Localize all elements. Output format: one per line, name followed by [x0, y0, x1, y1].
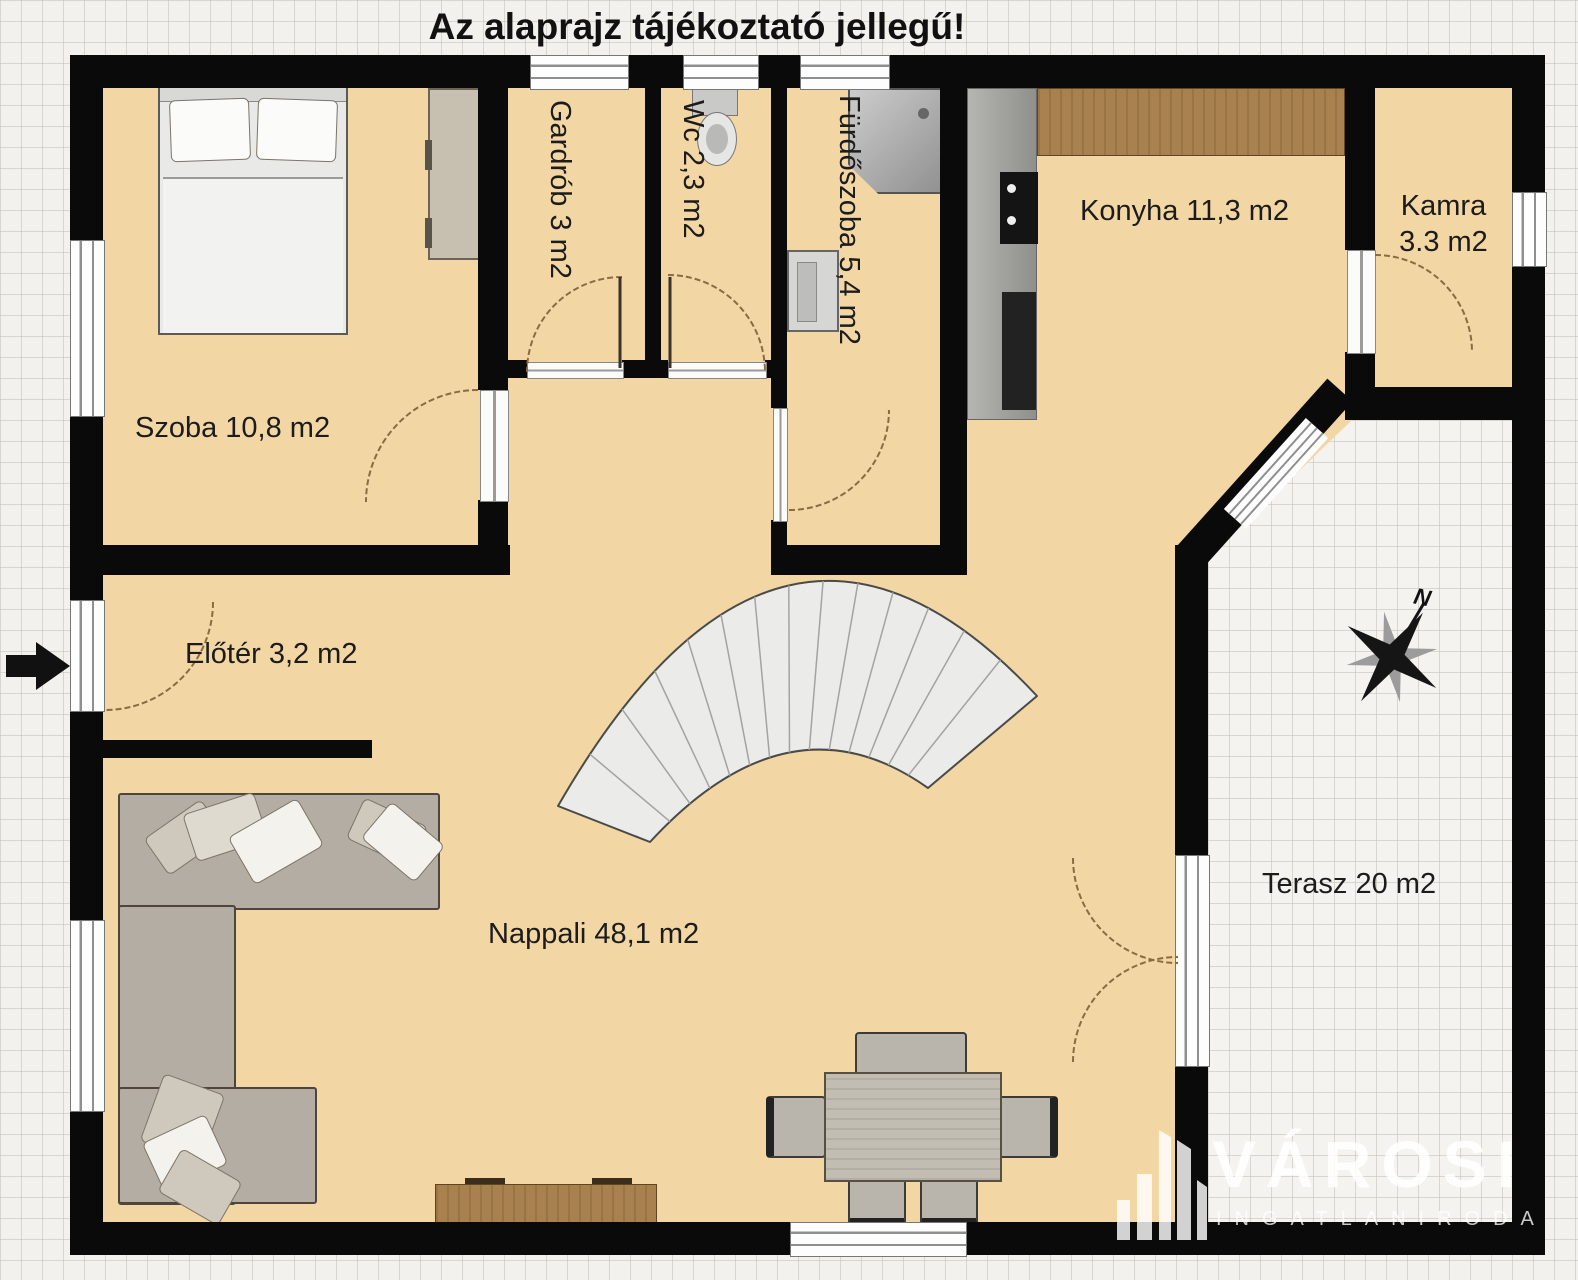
room-label-terasz: Terasz 20 m2: [1262, 868, 1436, 901]
room-label-gardrob: Gardrób 3 m2: [543, 100, 576, 390]
shower-drain: [918, 108, 929, 119]
watermark-brand: VÁROSI: [1212, 1126, 1525, 1202]
window-bottom-nappali: [790, 1222, 967, 1257]
wall-konyha-left: [940, 55, 967, 575]
dining-chair: [848, 1178, 906, 1226]
dining-chair: [920, 1178, 978, 1226]
floor-plan-page: { "title": "Az alaprajz tájékoztató jell…: [0, 0, 1578, 1280]
room-label-kamra-line2: 3.3 m2: [1375, 226, 1512, 259]
wall-wc-furdo: [771, 88, 787, 378]
cabinet-handle: [425, 218, 432, 248]
entrance-arrow-icon: [6, 642, 70, 690]
wall-hall-top-seg: [622, 360, 668, 378]
cabinet-handle: [425, 140, 432, 170]
window-kamra-right: [1512, 192, 1547, 267]
kitchen-counter-top: [1037, 88, 1345, 156]
toilet-bowl-inner: [706, 124, 728, 154]
wall-kamra-bottom: [1345, 387, 1545, 420]
room-label-eloter: Előtér 3,2 m2: [185, 638, 357, 671]
wall-szoba-right-upper: [478, 88, 508, 390]
room-label-kamra-line1: Kamra: [1375, 190, 1512, 223]
window-top-wc: [683, 55, 759, 90]
door-sill-kamra: [1347, 250, 1376, 354]
sideboard: [435, 1184, 657, 1224]
bed-blanket: [163, 177, 343, 333]
dining-chair: [998, 1096, 1058, 1158]
kitchen-appliance: [1002, 292, 1036, 410]
cooktop-burner: [1007, 184, 1016, 193]
wall-hall-top-seg: [508, 360, 527, 378]
wardrobe-cabinet: [428, 88, 485, 260]
door-sill-szoba: [480, 390, 509, 502]
window-szoba-left: [70, 240, 105, 417]
washing-machine-door: [797, 262, 817, 322]
wall-terasz-left-upper: [1175, 545, 1208, 855]
wall-furdo-left-mid: [771, 378, 787, 408]
wall-szoba-bottom: [103, 545, 510, 575]
wall-gardrob-wc: [645, 88, 661, 378]
cooktop: [1000, 172, 1038, 244]
wall-eloter-bottom-stub: [103, 740, 372, 758]
cooktop-burner: [1007, 216, 1016, 225]
room-label-wc: Wc 2,3 m2: [676, 100, 709, 380]
window-nappali-left: [70, 920, 105, 1112]
wall-hall-top-seg: [765, 360, 787, 378]
wall-furdo-bottom: [771, 545, 967, 575]
room-label-szoba: Szoba 10,8 m2: [135, 412, 330, 445]
watermark-subtitle: INGATLANIRODA: [1216, 1208, 1547, 1231]
terrace-door: [1175, 855, 1210, 1067]
page-title: Az alaprajz tájékoztató jellegű!: [0, 6, 1394, 48]
window-top-gardrob: [530, 55, 629, 90]
terrace-floor: [1208, 420, 1512, 1222]
bed-pillow: [169, 98, 251, 163]
dining-chair: [766, 1096, 826, 1158]
room-label-furdoszoba: Fürdőszoba 5,4 m2: [832, 95, 865, 415]
front-door: [70, 600, 105, 712]
bed-pillow: [256, 98, 338, 163]
window-top-furdo: [800, 55, 890, 90]
wall-kamra-left-upper: [1345, 55, 1375, 250]
room-label-konyha: Konyha 11,3 m2: [1080, 195, 1289, 228]
wall-terasz-left-lower: [1175, 1065, 1208, 1255]
bed: [158, 85, 348, 335]
room-label-nappali: Nappali 48,1 m2: [488, 918, 699, 951]
door-sill-furdo: [773, 408, 788, 522]
dining-table: [824, 1072, 1002, 1182]
